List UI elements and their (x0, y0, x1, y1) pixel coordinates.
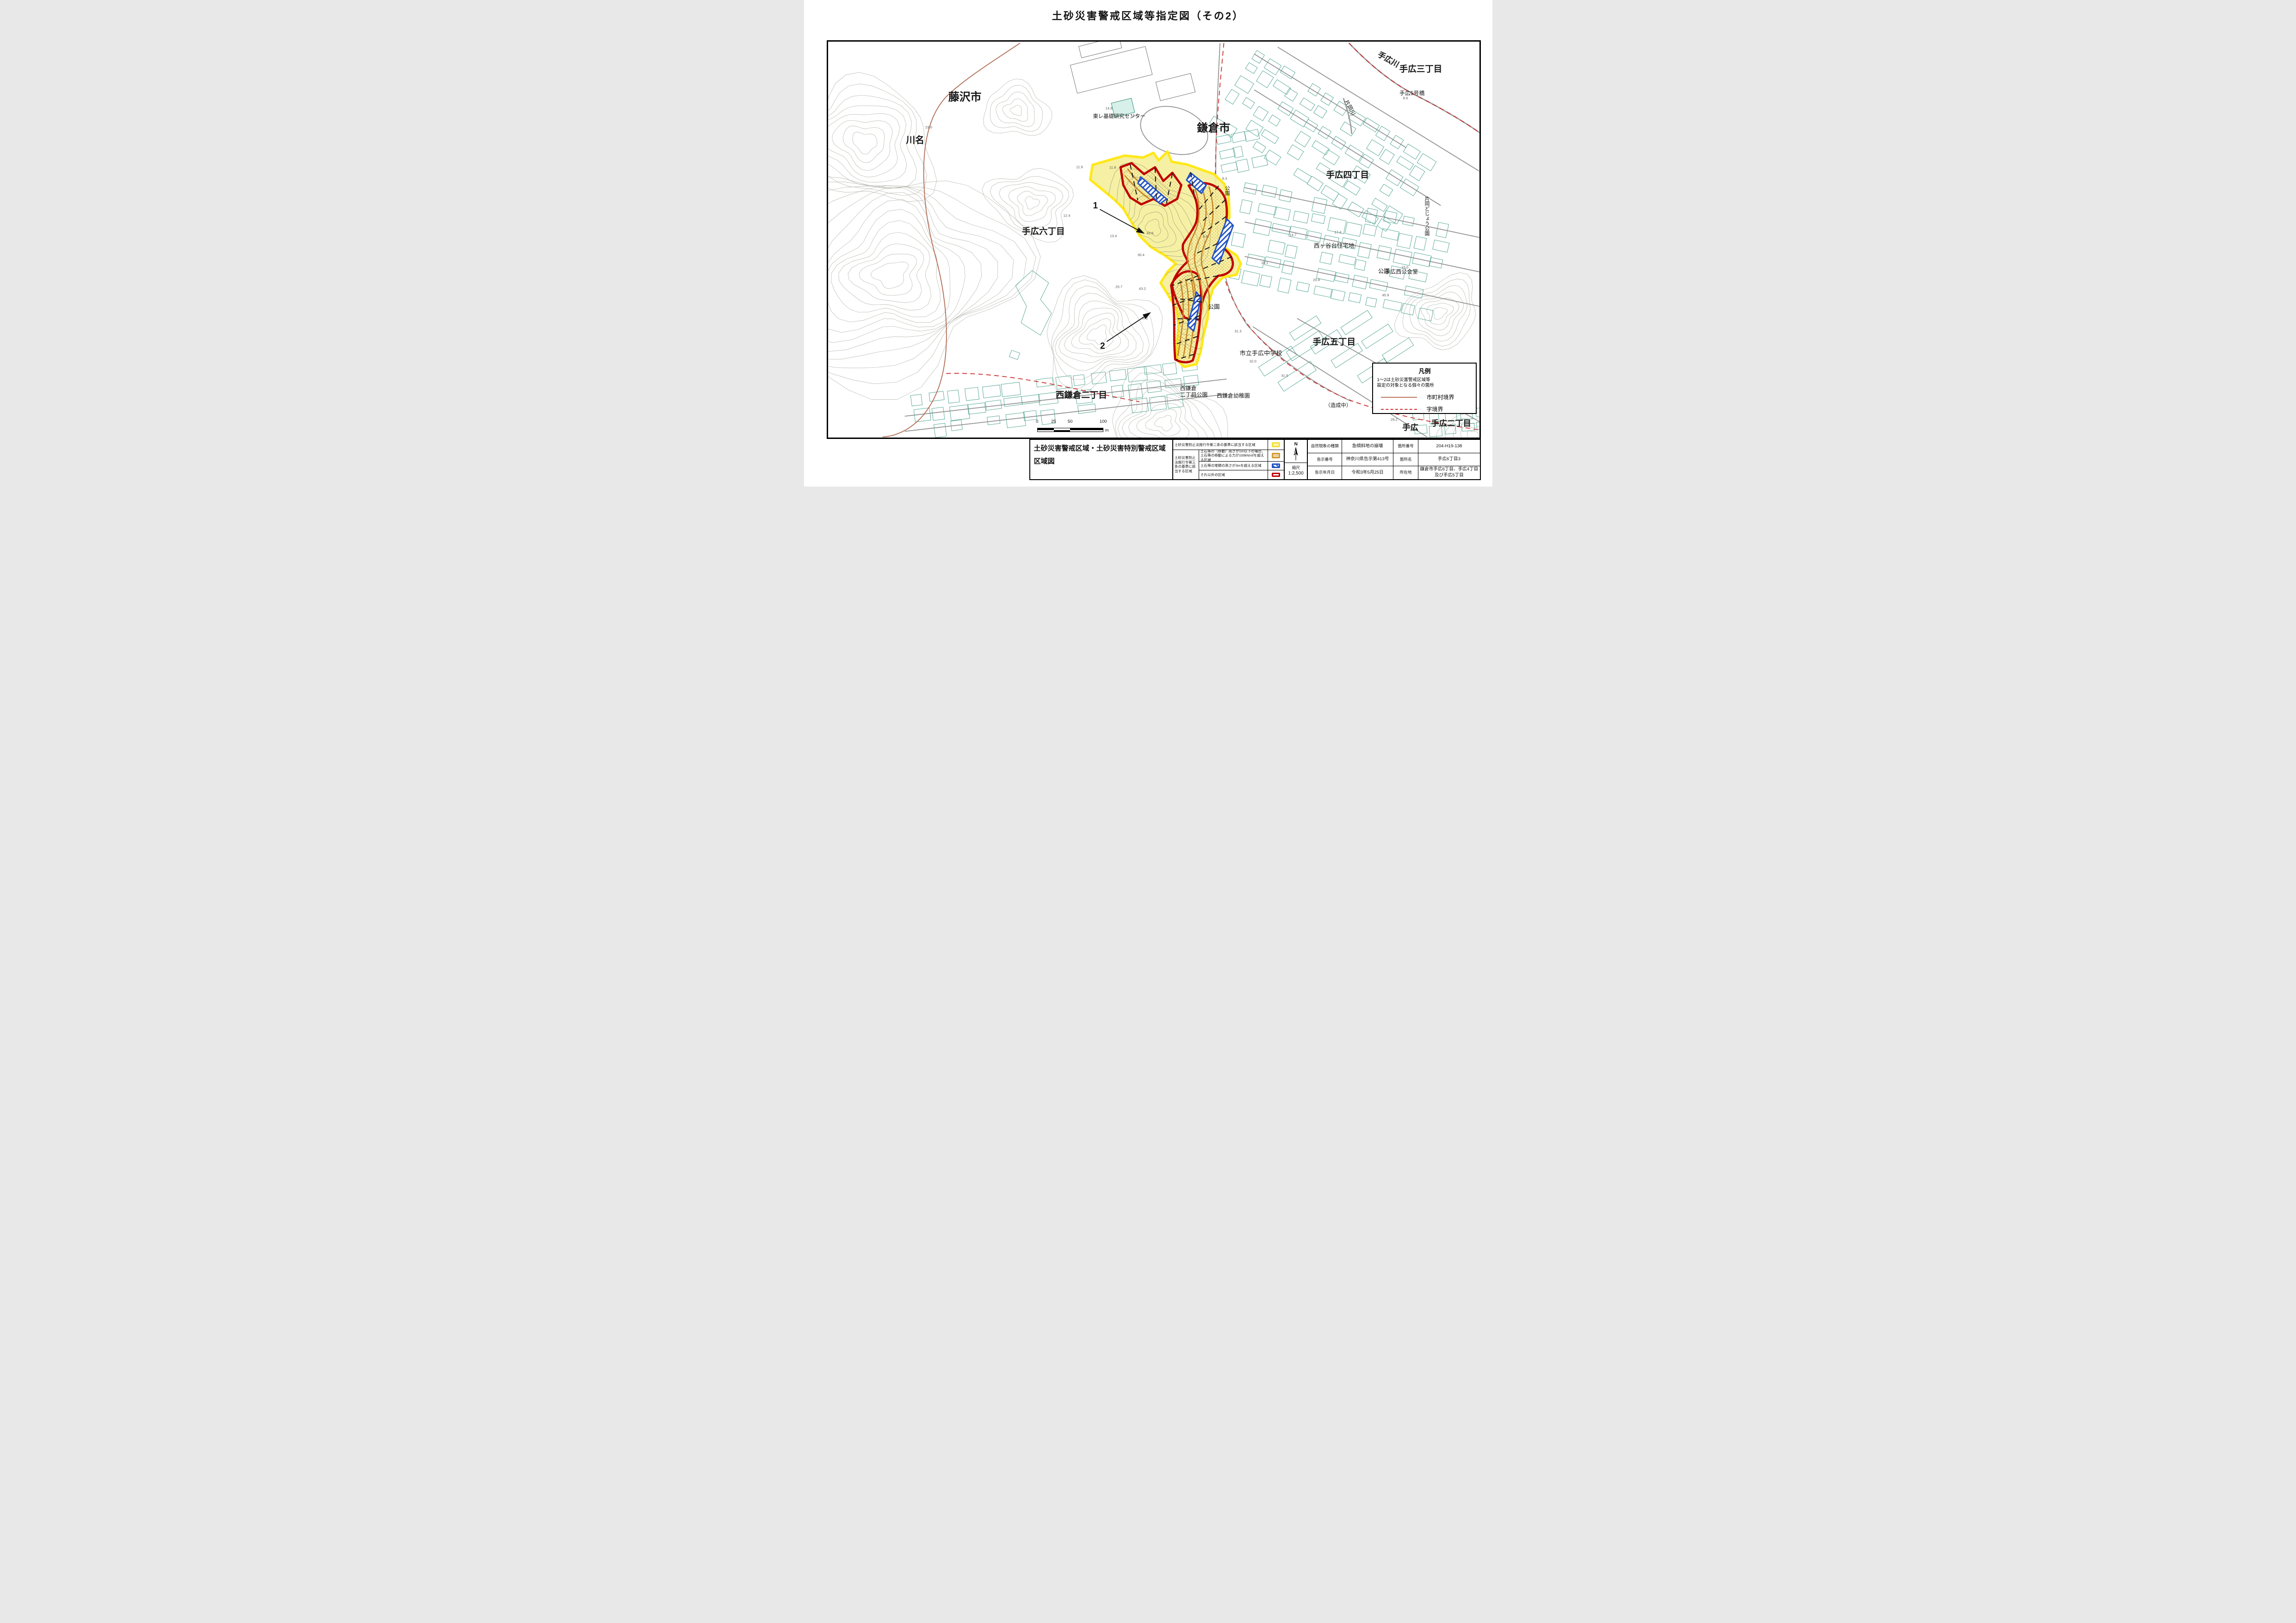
contour-line (828, 182, 1036, 384)
building-outline (1409, 270, 1427, 282)
contour-line (999, 182, 1063, 227)
contour-line (990, 85, 1042, 131)
contour-line (1421, 298, 1459, 330)
contour-line (1154, 415, 1172, 431)
yellow-zone-swatch (1272, 442, 1281, 447)
contour-line (1055, 293, 1143, 371)
building-outline (1235, 75, 1254, 93)
info-label-notice-date: 告示年月日 (1308, 466, 1341, 479)
building-outline (1221, 162, 1238, 173)
building-outline (1246, 120, 1263, 136)
info-value-site-number: 204-H19-138 (1418, 440, 1480, 453)
contour-line (871, 262, 908, 289)
building-outline (1253, 141, 1266, 153)
building-outline (1362, 324, 1393, 349)
building-outline (1321, 185, 1339, 201)
contour-line (1136, 404, 1189, 438)
legend-row1-label: 土砂災害防止法施行令第二条の基準に該当する区域 (1173, 440, 1268, 450)
building-outline (1281, 66, 1295, 79)
building-outline (932, 407, 945, 420)
contour-line (1017, 191, 1048, 216)
building-outline (1312, 213, 1325, 223)
contour-line (828, 188, 998, 352)
building-outline (983, 385, 1001, 398)
contour-line (1064, 308, 1128, 357)
building-outline (1243, 97, 1255, 108)
legend-note: 1～2は土砂災害警戒区域等 設定の対象となる個々の箇所 (1377, 377, 1472, 389)
building-outline (1345, 222, 1362, 236)
building-outline (1355, 259, 1366, 271)
building-outline (1341, 310, 1372, 335)
contour-line (853, 132, 877, 154)
legend-row1-swatch (1268, 440, 1284, 450)
scale-label: 縮尺 (1292, 465, 1300, 470)
building-outline (1036, 377, 1053, 387)
building-outline (1290, 316, 1321, 340)
building-outline (1079, 42, 1122, 58)
building-outline (1232, 131, 1246, 142)
map-frame: 1 2 藤沢市鎌倉市川名手広三丁目手広5号橋手広川片岡川手広四丁目片岡どじょう公… (827, 40, 1481, 439)
building-outline (910, 394, 922, 406)
scale-cell: 縮尺 1:2,500 (1285, 463, 1307, 479)
building-outline (1304, 119, 1318, 132)
building-outline (1403, 216, 1415, 226)
building-outline (1240, 199, 1252, 214)
building-outline (934, 423, 946, 438)
contour-line (831, 220, 941, 317)
aza-boundary-sample (1381, 409, 1417, 410)
building-outline (1347, 202, 1364, 216)
footer-map-title: 土砂災害警戒区域・土砂災害特別警戒区域 区域図 (1030, 440, 1172, 479)
contour-line (1003, 99, 1028, 121)
contour-line (1410, 285, 1467, 341)
scale-bar: 0 25 50 100 m (1035, 419, 1127, 433)
building-outline (1295, 131, 1311, 147)
building-outline (1366, 297, 1377, 307)
building-outline (1339, 254, 1356, 265)
building-outline (1070, 46, 1152, 93)
contour-line (839, 232, 931, 310)
building-outline (1009, 350, 1020, 359)
building-outline (1109, 369, 1126, 381)
legend-row3-label: 土石等の堆積の高さが3mを超える区域 (1199, 461, 1268, 470)
facility-buildings (1134, 98, 1214, 162)
building-outline (1004, 396, 1022, 407)
building-outline (1245, 62, 1257, 74)
contour-line (984, 79, 1052, 136)
building-outline (1293, 211, 1309, 223)
building-outline (1219, 148, 1236, 159)
building-outline (1382, 338, 1414, 362)
footer-compass-scale: N 縮尺 1:2,500 (1284, 440, 1307, 479)
municipal-boundary-sample (1381, 397, 1417, 398)
legend-note-line1: 1～2は土砂災害警戒区域等 (1377, 377, 1472, 383)
building-outline (1268, 240, 1285, 254)
scale-unit: m (1105, 428, 1109, 433)
building-outline (1278, 278, 1291, 293)
contour-line (1128, 396, 1198, 438)
building-outline (1253, 106, 1268, 121)
contour-line (1427, 303, 1454, 324)
building-outline (1351, 166, 1371, 183)
building-outline (1256, 71, 1274, 88)
contour-line (828, 95, 916, 188)
building-outline (1335, 272, 1349, 283)
footer-table: 土砂災害警戒区域・土砂災害特別警戒区域 区域図 土砂災害防止法施行令第二条の基準… (1029, 439, 1481, 480)
page: 土砂災害警戒区域等指定図（その2） (804, 0, 1492, 487)
building-outline (1380, 184, 1392, 196)
scale-tick: 25 (1051, 419, 1056, 424)
building-outline (1183, 375, 1199, 387)
building-outline (1414, 236, 1426, 250)
building-outline (1273, 80, 1291, 94)
building-outline (1400, 179, 1419, 196)
building-outline (1236, 159, 1249, 173)
building-outline (1312, 141, 1330, 155)
contour-line (1433, 308, 1448, 320)
building-outline (1131, 398, 1149, 413)
contour-line (996, 92, 1035, 127)
building-outline (1381, 228, 1399, 241)
building-outline (1244, 129, 1260, 141)
legend-row4-swatch (1268, 470, 1284, 479)
contour-line (982, 168, 1074, 242)
info-label-site-number: 箇所番号 (1393, 440, 1418, 453)
building-outline (1436, 222, 1449, 238)
building-outline (1380, 149, 1394, 164)
building-outline (947, 390, 960, 403)
contour-line (828, 113, 900, 177)
contour-line (828, 199, 965, 332)
building-outline (1314, 105, 1327, 118)
footer-zone-legend: 土砂災害防止法施行令第二条の基準に該当する区域 土砂災害防止法施行令第三条の基準… (1172, 440, 1284, 479)
building-outline (1358, 242, 1372, 258)
contour-line (832, 120, 892, 170)
building-outline (1344, 181, 1361, 195)
building-outline (1282, 260, 1294, 274)
building-outline (1264, 150, 1281, 165)
red-zone-swatch (1272, 473, 1281, 477)
legend-row3-swatch (1268, 461, 1284, 470)
contour-line (828, 192, 982, 343)
building-outline (1320, 252, 1333, 264)
building-outline (1278, 102, 1293, 116)
map-legend: 凡例 1～2は土砂災害警戒区域等 設定の対象となる個々の箇所 市町村境界 字境界 (1372, 363, 1477, 414)
building-outline (1241, 271, 1260, 286)
contour-line (828, 176, 1040, 400)
building-outline (1111, 98, 1135, 117)
legend-note-line2: 設定の対象となる個々の箇所 (1377, 383, 1472, 389)
contour-line (859, 254, 916, 295)
kataoka-river (1343, 98, 1352, 134)
building-outline (1397, 156, 1413, 170)
scale-value: 1:2,500 (1288, 470, 1304, 476)
building-outline (1231, 232, 1245, 247)
contour-line (990, 176, 1069, 235)
building-outline (950, 405, 970, 421)
building-outline (1330, 171, 1348, 187)
building-outline (1290, 110, 1309, 127)
building-outline (1429, 426, 1442, 437)
contour-line (1010, 105, 1022, 115)
building-outline (1403, 144, 1420, 159)
contour-line (828, 84, 927, 195)
legend-row4-label: それ以外の区域 (1199, 470, 1268, 479)
contour-line (828, 72, 937, 202)
legend-item-municipal: 市町村境界 (1377, 393, 1472, 401)
info-label-phenomenon: 自然現象の種類 (1308, 440, 1341, 453)
contour-line (1058, 301, 1136, 363)
building-outline (1156, 74, 1195, 101)
building-outline (1287, 145, 1304, 160)
building-outline (1286, 331, 1324, 361)
footer-info-table: 自然現象の種類 急傾斜地の崩壊 箇所番号 204-H19-138 告示番号 神奈… (1307, 440, 1479, 479)
building-outline (1163, 363, 1177, 375)
contour-line (1403, 279, 1470, 346)
building-outline (1296, 282, 1310, 292)
building-outline (1262, 185, 1277, 197)
callout-2: 2 (1100, 341, 1105, 351)
building-outline (1078, 404, 1096, 413)
building-outline (965, 387, 979, 401)
legend-item-aza: 字境界 (1377, 405, 1472, 413)
blue-zone-swatch (1272, 463, 1281, 468)
building-outline (1278, 361, 1316, 391)
building-outline (1363, 224, 1377, 236)
building-outline (1091, 372, 1107, 384)
building-outline (1312, 197, 1327, 214)
contour-line (1436, 411, 1479, 437)
building-outline (1331, 290, 1345, 301)
building-outline (1225, 89, 1239, 104)
building-outline (1340, 122, 1356, 136)
contour-line (1025, 197, 1040, 210)
orange-zone-swatch (1272, 453, 1281, 458)
building-outline (1401, 303, 1415, 315)
compass-cell: N (1285, 440, 1307, 463)
building-outline (1410, 166, 1425, 181)
building-outline (1316, 163, 1330, 175)
info-label-notice-number: 告示番号 (1308, 453, 1341, 466)
contour-line (1467, 431, 1478, 438)
building-outline (1128, 383, 1143, 399)
building-outline (1289, 226, 1307, 240)
scale-tick: 0 (1036, 419, 1038, 424)
info-value-phenomenon: 急傾斜地の崩壊 (1342, 440, 1393, 453)
building-outline (1165, 378, 1182, 388)
legend-row2-label: 土石等の（移動）高さが1m以下の場合、土石等の移動による力が100kN/㎡を超え… (1199, 450, 1268, 461)
building-outline (1390, 266, 1406, 279)
building-outline (1246, 254, 1265, 268)
contour-line (1079, 319, 1113, 350)
building-outline (1285, 88, 1298, 101)
building-outline (1433, 240, 1449, 253)
footer-map-title-line1: 土砂災害警戒区域・土砂災害特別警戒区域 (1034, 442, 1169, 456)
field-outline (1015, 271, 1052, 335)
building-outline (1285, 245, 1298, 258)
building-outline (1001, 382, 1021, 397)
building-outline (1300, 98, 1315, 111)
page-title: 土砂災害警戒区域等指定図（その2） (804, 8, 1492, 23)
footer-map-title-line2: 区域図 (1034, 455, 1169, 469)
north-arrow-icon (1293, 447, 1299, 461)
contour-line (828, 185, 1027, 368)
building-outline (1383, 299, 1402, 311)
legend-group-label: 土砂災害防止法施行令第三条の基準に該当する区域 (1173, 450, 1199, 479)
info-value-notice-date: 令和3年5月25日 (1342, 466, 1393, 479)
building-outline (1308, 83, 1320, 96)
legend-item-label: 字境界 (1427, 405, 1443, 413)
info-label-site-name: 箇所名 (1393, 453, 1418, 466)
building-outline (1331, 136, 1346, 149)
building-outline (1328, 217, 1346, 234)
scale-tick: 50 (1068, 419, 1073, 424)
building-outline (1418, 308, 1433, 321)
building-outline (1264, 59, 1281, 75)
scale-tick: 100 (1100, 419, 1107, 424)
building-outline (1252, 50, 1264, 63)
building-outline (1269, 115, 1281, 126)
legend-title: 凡例 (1377, 366, 1472, 375)
building-outline (1307, 176, 1323, 191)
callout-1: 1 (1093, 201, 1098, 210)
building-outline (1314, 286, 1332, 297)
building-outline (1363, 118, 1380, 132)
contour-line (828, 185, 1014, 359)
building-outline (1386, 170, 1403, 186)
building-outline (1073, 375, 1085, 386)
building-outline (1323, 149, 1339, 165)
contour-line (1118, 380, 1216, 438)
info-value-notice-number: 神奈川県告示第413号 (1342, 453, 1393, 466)
building-outline (1349, 292, 1362, 302)
building-outline (1261, 130, 1279, 144)
info-value-site-name: 手広6丁目3 (1418, 453, 1480, 466)
building-outline (1258, 204, 1277, 215)
legend-item-label: 市町村境界 (1427, 393, 1454, 401)
contour-line (1395, 272, 1476, 350)
contour-line (843, 126, 885, 163)
info-label-location: 所在地 (1393, 466, 1418, 479)
north-label: N (1294, 442, 1298, 447)
tebiro-river (1349, 43, 1479, 133)
building-outline (1260, 275, 1272, 287)
building-outline (1318, 126, 1331, 139)
contour-line (1009, 186, 1056, 221)
building-outline (1006, 413, 1026, 428)
building-outline (1252, 155, 1268, 168)
info-value-location: 鎌倉市手広6丁目、手広4丁目及び手広5丁目 (1418, 466, 1480, 479)
building-outline (1272, 223, 1290, 235)
scale-bar-track (1037, 428, 1103, 432)
building-outline (1397, 233, 1412, 248)
legend-row2-swatch (1268, 450, 1284, 461)
building-outline (1367, 140, 1384, 156)
